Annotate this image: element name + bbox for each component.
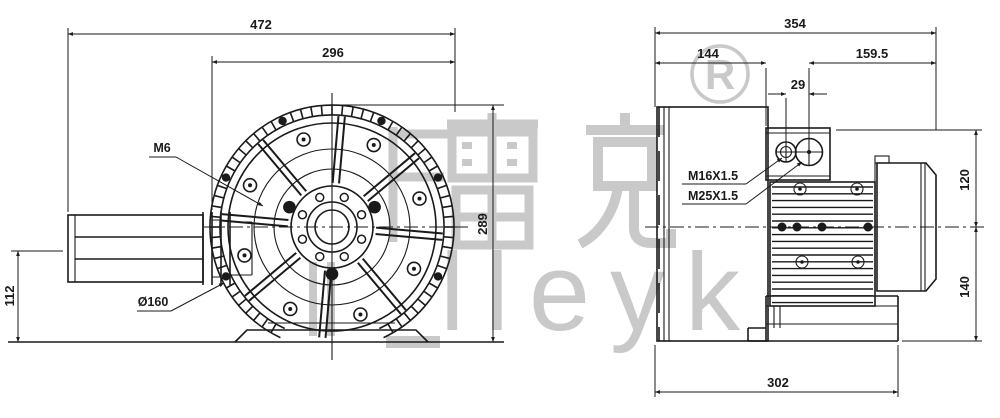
leader-gland-large bbox=[746, 162, 802, 204]
silencer-connection-pipe bbox=[230, 222, 252, 275]
watermark-latin-text: lleyk bbox=[440, 231, 760, 354]
dim-gland-spacing-text: 29 bbox=[791, 77, 805, 92]
junction-box bbox=[766, 128, 830, 180]
motor-bolt bbox=[793, 223, 802, 232]
motor-bolt bbox=[818, 223, 827, 232]
motor-bolt bbox=[778, 223, 787, 232]
label-flange-diameter: Ø160 bbox=[138, 295, 169, 309]
motor-end-cap bbox=[875, 156, 936, 291]
motor-bolt bbox=[864, 223, 873, 232]
cable-gland-large bbox=[796, 139, 823, 166]
motor-cooling-fins bbox=[772, 187, 873, 303]
dim-motor-depth-text: 159.5 bbox=[856, 46, 889, 61]
leader-flange-diameter bbox=[171, 283, 224, 311]
motor-body bbox=[770, 182, 875, 306]
label-gland-large: M25X1.5 bbox=[688, 189, 738, 203]
end-cap-tab bbox=[875, 156, 889, 163]
dim-height-above-axis-text: 120 bbox=[957, 169, 972, 191]
dim-base-depth-text: 302 bbox=[767, 375, 789, 390]
dim-housing-depth-text: 144 bbox=[697, 46, 719, 61]
dim-axis-height-text: 112 bbox=[2, 286, 17, 307]
watermark-partial-character bbox=[393, 127, 448, 242]
dim-height-below-axis-text: 140 bbox=[957, 276, 972, 298]
discharge-port-lines bbox=[774, 306, 780, 328]
dim-fan-diameter-text: 296 bbox=[322, 45, 344, 60]
technical-drawing-canvas: lleyk R bbox=[0, 0, 1000, 418]
cable-gland-small bbox=[776, 142, 796, 162]
dim-overall-height-text: 289 bbox=[475, 213, 490, 235]
blower-dimension-drawing: lleyk R bbox=[0, 0, 1000, 418]
dim-overall-width-text: 472 bbox=[250, 17, 272, 32]
label-thread-m6: M6 bbox=[153, 141, 170, 155]
front-view: 472 296 289 112 M6 Ø160 bbox=[2, 17, 504, 360]
dim-overall-depth-text: 354 bbox=[784, 16, 806, 31]
label-gland-small: M16X1.5 bbox=[688, 169, 738, 183]
